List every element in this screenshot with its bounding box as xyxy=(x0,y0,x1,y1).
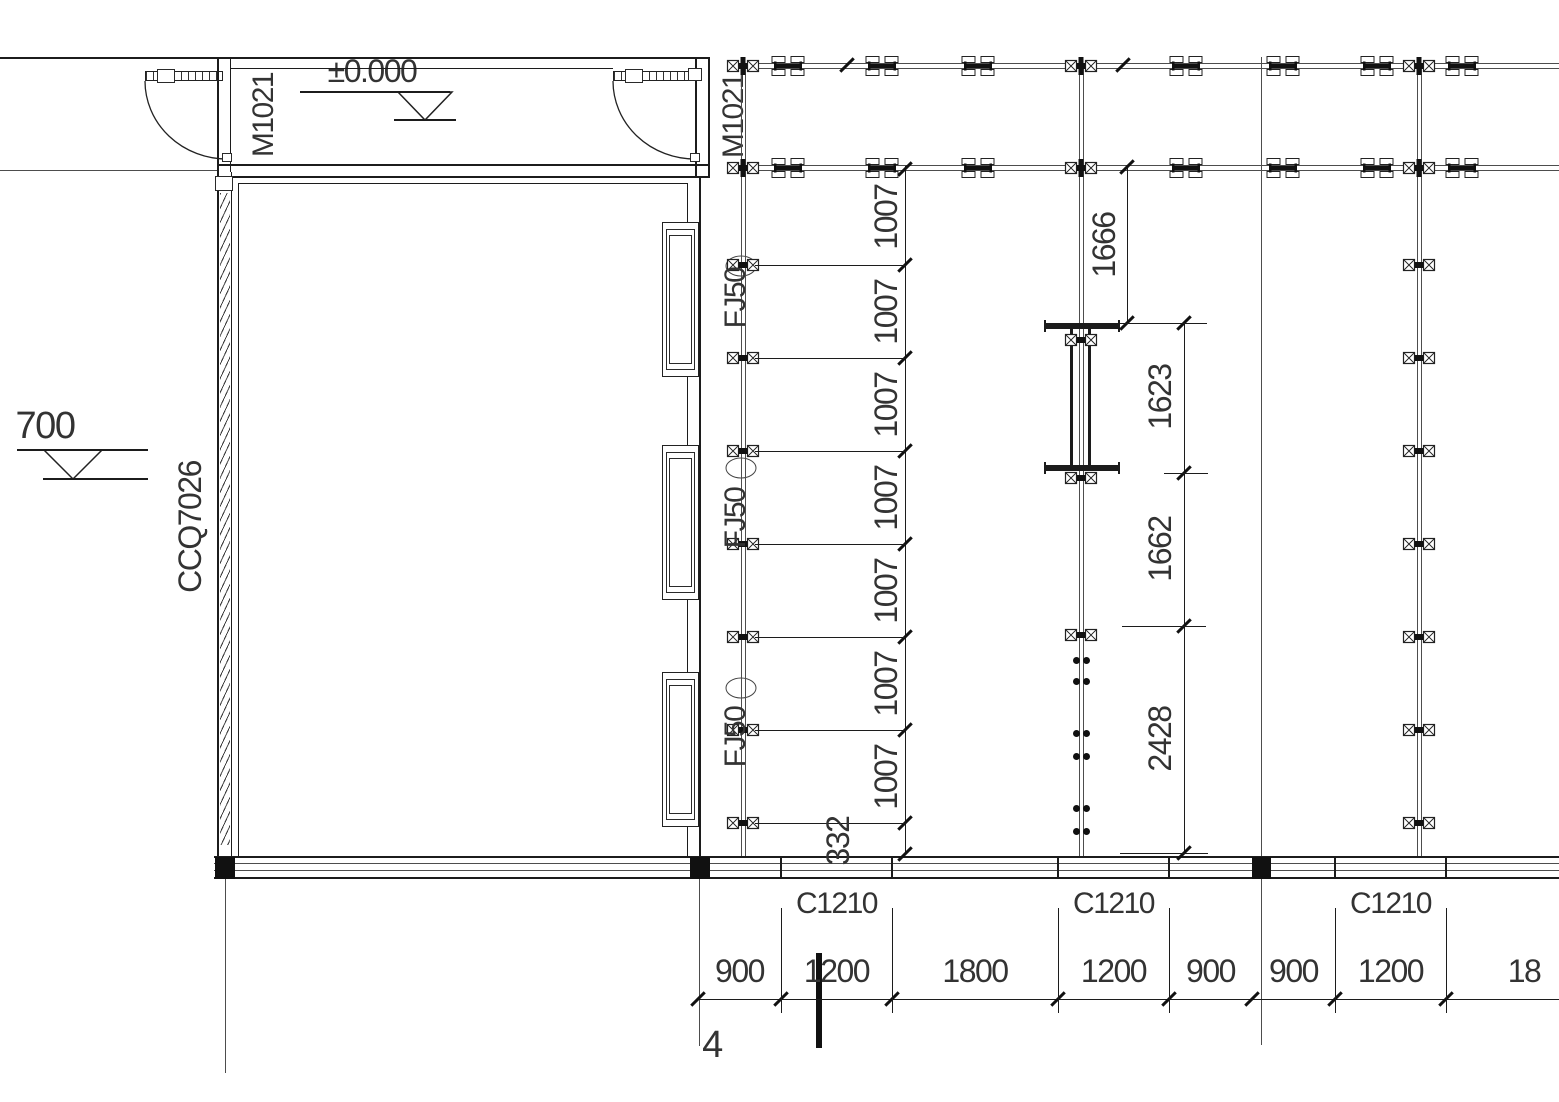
dim-line xyxy=(1127,165,1128,323)
rail-connector-icon xyxy=(769,157,807,179)
grid-line xyxy=(699,879,700,1046)
junction-connector-icon xyxy=(726,158,760,178)
grid-line xyxy=(1261,57,1262,1045)
grid-ref-line xyxy=(0,170,217,171)
junction-connector-icon-svg xyxy=(1064,158,1098,178)
rail-connector-icon xyxy=(1167,55,1205,77)
rail-connector-icon-svg xyxy=(1358,157,1396,179)
dim-extension-line xyxy=(1335,908,1336,1013)
rail-connector-icon-svg xyxy=(959,55,997,77)
dim-extension-line xyxy=(755,637,905,638)
rail-connector-icon xyxy=(769,55,807,77)
dim-extension-line xyxy=(1118,323,1207,324)
dim-label: 1666 xyxy=(1088,212,1120,277)
junction-connector-icon-svg xyxy=(726,56,760,76)
stud-connector-icon xyxy=(1402,627,1436,647)
column-square xyxy=(1252,857,1271,879)
level-mark-line xyxy=(394,119,456,121)
dim-extension-line xyxy=(1122,626,1206,627)
dim-label: 332 xyxy=(822,817,854,866)
wall-outer-line xyxy=(0,57,710,59)
bolt-dot xyxy=(1083,730,1090,737)
stud-tag-label: FJ50 xyxy=(721,707,751,768)
rail-connector-icon xyxy=(1264,55,1302,77)
window-tag-label: C1210 xyxy=(1350,889,1431,919)
rail-connector-icon-svg xyxy=(769,157,807,179)
stud-connector-icon-svg xyxy=(1402,534,1436,554)
stud-line xyxy=(1079,63,1080,856)
stud-connector-icon-svg xyxy=(1064,468,1098,488)
bolt-dot xyxy=(1073,678,1080,685)
rail-connector-icon xyxy=(863,157,901,179)
rail-connector-icon xyxy=(1443,157,1481,179)
stud-tag-label: FJ50 xyxy=(721,268,751,329)
curtain-wall-hatch xyxy=(220,193,230,845)
window-tag-label: C1210 xyxy=(1073,889,1154,919)
stud-connector-icon-svg xyxy=(1402,348,1436,368)
dim-extension-line xyxy=(1120,853,1208,854)
dim-label: 1800 xyxy=(942,955,1007,987)
dim-label: 1007 xyxy=(870,465,902,530)
dim-label: 18 xyxy=(1508,955,1541,987)
cad-floor-plan: M1021 M1021 ±0.000 700 CCQ7026 4 xyxy=(0,0,1559,1102)
column-plate-tick xyxy=(1044,462,1046,474)
rail-connector-icon xyxy=(959,157,997,179)
bolt-dot xyxy=(1083,678,1090,685)
wall-line xyxy=(231,172,232,878)
rail-connector-icon xyxy=(1358,55,1396,77)
dim-extension-line xyxy=(755,358,905,359)
stud-connector-icon xyxy=(1402,255,1436,275)
stud-connector-icon xyxy=(1064,468,1098,488)
dim-label: 1007 xyxy=(870,744,902,809)
junction-connector-icon xyxy=(1064,158,1098,178)
stud-connector-icon-svg xyxy=(1402,627,1436,647)
rail-connector-icon xyxy=(863,55,901,77)
curtain-wall-label: CCQ7026 xyxy=(174,461,206,593)
stud-connector-icon-svg xyxy=(1402,720,1436,740)
rail-connector-icon-svg xyxy=(1167,157,1205,179)
door-swing-arc xyxy=(613,81,695,159)
bolt-dot xyxy=(1073,657,1080,664)
stud-connector-icon xyxy=(1064,625,1098,645)
door-hinge-plate xyxy=(625,69,643,83)
stud-tag-label: FJ50 xyxy=(721,488,751,549)
wall-line xyxy=(699,178,701,856)
window-jamb xyxy=(1057,856,1059,878)
window-sash xyxy=(669,458,692,587)
grid-axis-label: 4 xyxy=(702,1026,722,1064)
stud-connector-icon-svg xyxy=(1064,330,1098,350)
dim-extension-line xyxy=(755,265,905,266)
column-plate-tick xyxy=(1044,320,1046,332)
bolt-dot xyxy=(1073,805,1080,812)
window-glass-line xyxy=(214,863,1559,864)
dim-extension-line xyxy=(755,451,905,452)
rail-connector-icon xyxy=(1443,55,1481,77)
stud-connector-icon-svg xyxy=(1064,625,1098,645)
door-swing-arc xyxy=(145,81,227,159)
stud-connector-icon xyxy=(1402,534,1436,554)
window-sash xyxy=(669,685,692,814)
wall-line xyxy=(708,59,710,178)
door-jamb-block xyxy=(222,153,232,162)
junction-connector-icon xyxy=(1402,158,1436,178)
interior-wall-line xyxy=(238,183,687,184)
dim-label: 1623 xyxy=(1144,364,1176,429)
bolt-dot xyxy=(1073,828,1080,835)
dim-label: 900 xyxy=(1186,955,1235,987)
junction-connector-icon xyxy=(1064,56,1098,76)
rail-connector-icon-svg xyxy=(769,55,807,77)
dim-label: 1007 xyxy=(870,651,902,716)
stud-line xyxy=(1083,63,1084,856)
junction-connector-icon xyxy=(726,56,760,76)
dim-label: 1007 xyxy=(870,558,902,623)
window-jamb xyxy=(780,856,782,878)
window-jamb xyxy=(1334,856,1336,878)
window-glass-line xyxy=(214,870,1559,871)
window-jamb xyxy=(1445,856,1447,878)
door-jamb-block xyxy=(690,153,700,162)
rail-connector-icon-svg xyxy=(863,55,901,77)
bolt-dot xyxy=(1083,753,1090,760)
door-hinge-plate xyxy=(157,69,175,83)
interior-wall-line xyxy=(238,183,239,856)
room-top-wall-line xyxy=(217,164,710,166)
level-label-entry: 700 xyxy=(16,407,75,445)
dim-extension-line xyxy=(892,908,893,1013)
dim-extension-line xyxy=(781,908,782,1013)
dim-extension-line xyxy=(755,730,905,731)
door-label-left: M1021 xyxy=(249,73,279,157)
junction-connector-icon-svg xyxy=(1402,56,1436,76)
rail-connector-icon-svg xyxy=(1443,157,1481,179)
level-mark-line xyxy=(43,478,148,480)
stud-connector-icon-svg xyxy=(1402,255,1436,275)
stud-connector-icon-svg xyxy=(1402,813,1436,833)
rail-connector-icon-svg xyxy=(959,157,997,179)
dim-label: 2428 xyxy=(1144,706,1176,771)
rail-connector-icon-svg xyxy=(863,157,901,179)
level-label-zero: ±0.000 xyxy=(328,55,417,87)
rail-connector-icon-svg xyxy=(1358,55,1396,77)
dim-label: 1007 xyxy=(870,184,902,249)
dim-extension-line xyxy=(1446,908,1447,1013)
dim-line xyxy=(698,999,1559,1000)
dim-label: 1007 xyxy=(870,279,902,344)
rail-connector-icon xyxy=(1264,157,1302,179)
window-sash xyxy=(669,235,692,364)
column-plate-tick xyxy=(1118,320,1120,332)
room-top-wall-line xyxy=(217,176,710,178)
column-plate xyxy=(1046,323,1118,329)
wall-end-cap xyxy=(215,176,233,191)
junction-connector-icon-svg xyxy=(1402,158,1436,178)
dim-label: 1200 xyxy=(1081,955,1146,987)
stud-connector-icon xyxy=(1402,348,1436,368)
junction-connector-icon xyxy=(1402,56,1436,76)
column-square xyxy=(690,857,710,879)
rail-connector-icon-svg xyxy=(1443,55,1481,77)
bolt-dot xyxy=(1073,730,1080,737)
dim-label: 1200 xyxy=(1358,955,1423,987)
wall-line xyxy=(214,877,1559,879)
level-triangle-icon xyxy=(398,92,452,120)
stud-connector-icon-svg xyxy=(1402,441,1436,461)
rail-connector-icon-svg xyxy=(1264,157,1302,179)
stud-connector-icon xyxy=(1064,330,1098,350)
stud-connector-icon xyxy=(1402,813,1436,833)
dim-extension-line xyxy=(1058,908,1059,1013)
window-jamb xyxy=(1168,856,1170,878)
level-mark-line xyxy=(300,91,450,93)
bolt-dot xyxy=(1083,805,1090,812)
dim-label: 1200 xyxy=(804,955,869,987)
window-tag-label: C1210 xyxy=(796,889,877,919)
rail-connector-icon xyxy=(959,55,997,77)
window-jamb xyxy=(891,856,893,878)
level-mark-line xyxy=(17,449,148,451)
wall-inner-line xyxy=(230,68,613,69)
dim-label: 1007 xyxy=(870,372,902,437)
dim-extension-line xyxy=(1169,908,1170,1013)
dim-line xyxy=(1184,323,1185,853)
dim-label: 1662 xyxy=(1144,516,1176,581)
dim-label: 900 xyxy=(715,955,764,987)
bolt-dot xyxy=(1083,828,1090,835)
rail-connector-icon xyxy=(1358,157,1396,179)
column-square xyxy=(215,857,235,879)
dim-extension-line xyxy=(1164,473,1208,474)
column-plate-tick xyxy=(1118,462,1120,474)
wall-line xyxy=(214,856,1559,858)
dim-label: 900 xyxy=(1269,955,1318,987)
junction-connector-icon-svg xyxy=(726,158,760,178)
stud-connector-icon xyxy=(1402,441,1436,461)
rail-connector-icon-svg xyxy=(1264,55,1302,77)
level-triangle-icon xyxy=(44,450,102,479)
rail-connector-icon-svg xyxy=(1167,55,1205,77)
grid-line xyxy=(225,879,226,1073)
bolt-dot xyxy=(1073,753,1080,760)
dim-line xyxy=(905,166,906,855)
junction-connector-icon-svg xyxy=(1064,56,1098,76)
rail-connector-icon xyxy=(1167,157,1205,179)
bolt-dot xyxy=(1083,657,1090,664)
stud-connector-icon xyxy=(1402,720,1436,740)
dim-extension-line xyxy=(755,544,905,545)
door-jamb-block xyxy=(688,68,702,81)
